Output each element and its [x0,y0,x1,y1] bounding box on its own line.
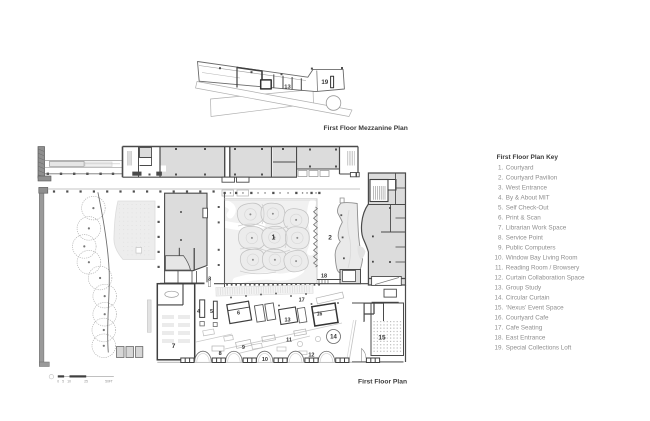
svg-text:18.: 18. [495,335,504,342]
svg-text:Courtyard: Courtyard [506,165,534,172]
svg-text:7.: 7. [498,225,504,232]
svg-text:6: 6 [237,311,240,317]
svg-text:13.: 13. [495,285,504,292]
svg-text:By & About MIT: By & About MIT [506,195,550,202]
svg-text:5.: 5. [498,205,504,212]
svg-text:5: 5 [62,379,64,383]
svg-text:Public Computers: Public Computers [506,245,556,252]
svg-text:Reading Room / Browsery: Reading Room / Browsery [506,265,580,272]
svg-text:First Floor Plan Key: First Floor Plan Key [497,154,559,161]
svg-text:Librarian Work Space: Librarian Work Space [506,225,567,232]
svg-text:15.: 15. [495,305,504,312]
svg-text:Print & Scan: Print & Scan [506,215,541,222]
svg-text:Circular Curtain: Circular Curtain [506,295,550,302]
svg-text:8.: 8. [498,235,504,242]
svg-text:17.: 17. [495,325,504,332]
svg-text:Self Check-Out: Self Check-Out [506,205,549,212]
svg-text:17: 17 [299,297,305,303]
svg-text:7: 7 [172,343,176,350]
svg-text:10: 10 [67,379,71,383]
svg-text:11.: 11. [495,265,504,272]
svg-text:Window Bay Living Room: Window Bay Living Room [506,255,578,262]
svg-text:10: 10 [262,357,268,363]
svg-text:8: 8 [219,351,222,357]
svg-text:4.: 4. [498,195,504,202]
svg-text:1: 1 [272,235,276,242]
svg-text:12.: 12. [495,275,504,282]
svg-text:13: 13 [284,84,291,90]
svg-text:Service Point: Service Point [506,235,543,242]
svg-text:Courtyard Cafe: Courtyard Cafe [506,315,549,322]
svg-text:16.: 16. [495,315,504,322]
svg-text:16: 16 [317,312,323,318]
svg-text:2: 2 [328,235,332,242]
svg-text:50FT: 50FT [105,379,112,383]
svg-text:9: 9 [242,345,245,351]
svg-text:14.: 14. [495,295,504,302]
svg-text:0: 0 [57,379,59,383]
svg-text:Cafe Seating: Cafe Seating [506,325,543,332]
svg-text:Special Collections Loft: Special Collections Loft [506,345,572,352]
svg-text:2.: 2. [498,175,504,182]
svg-text:Curtain Collaboration Space: Curtain Collaboration Space [506,275,585,282]
svg-text:5: 5 [210,309,213,315]
svg-text:First Floor Plan: First Floor Plan [358,378,407,385]
svg-text:19: 19 [321,79,328,86]
svg-text:3.: 3. [498,185,504,192]
svg-text:10.: 10. [495,255,504,262]
svg-text:First Floor Mezzanine Plan: First Floor Mezzanine Plan [324,125,408,132]
svg-text:19.: 19. [495,345,504,352]
svg-text:14: 14 [330,335,337,341]
svg-text:18: 18 [321,274,327,280]
svg-text:Courtyard Pavilion: Courtyard Pavilion [506,175,558,182]
svg-text:12: 12 [308,353,314,359]
svg-text:11: 11 [286,338,292,344]
svg-text:13: 13 [284,318,290,324]
svg-text:9.: 9. [498,245,504,252]
svg-text:East Entrance: East Entrance [506,335,546,342]
svg-text:1.: 1. [498,165,504,172]
svg-text:3: 3 [208,277,211,283]
svg-text:West Entrance: West Entrance [506,185,548,192]
svg-text:6.: 6. [498,215,504,222]
svg-text:‘Nexus’ Event Space: ‘Nexus’ Event Space [506,305,564,312]
svg-text:15: 15 [378,335,386,342]
svg-text:25: 25 [84,379,88,383]
svg-text:Group Study: Group Study [506,285,542,292]
